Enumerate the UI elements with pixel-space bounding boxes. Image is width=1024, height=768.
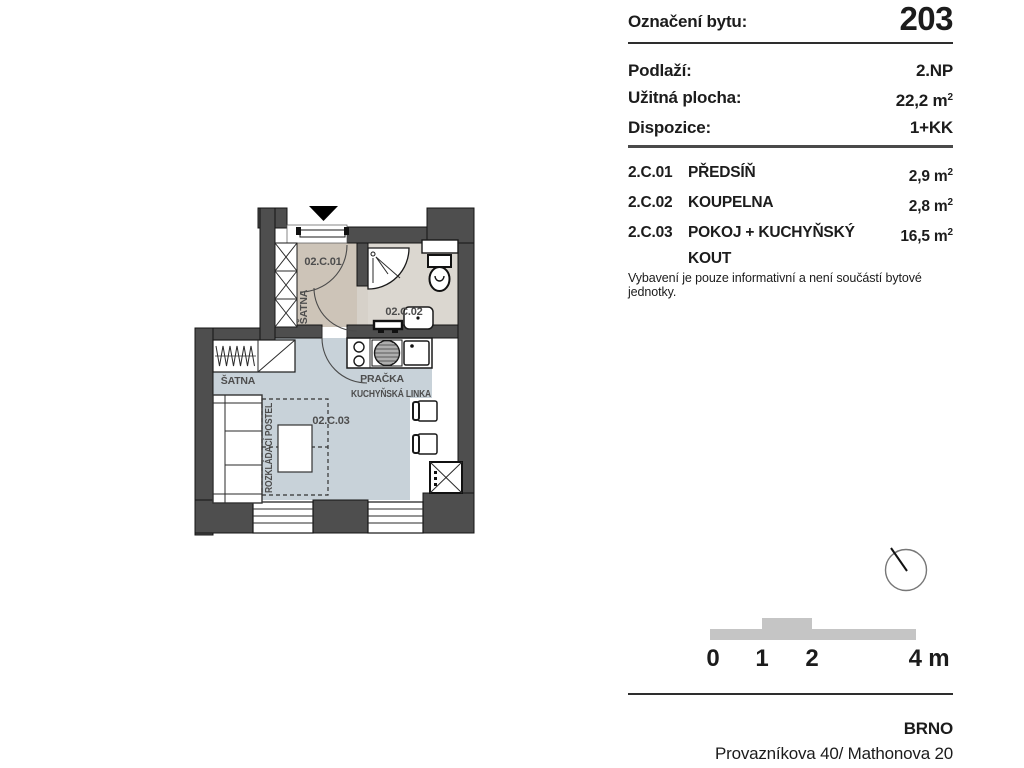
bath-door-floor: [357, 286, 368, 327]
room-row-2: 2.C.02 KOUPELNA 2,8 m2: [628, 190, 953, 220]
scale-tick-4m: 4 m: [909, 645, 950, 673]
room-wardrobe: [213, 340, 295, 372]
floor-plan-drawing: 02.C.01 ŠATNA 02.C.02 ŠATNA PRAČKA KUCHY…: [188, 198, 482, 542]
hall-wardrobe-label: ŠATNA: [297, 289, 310, 324]
room-code-label: 02.C.03: [312, 415, 349, 427]
entrance-arrow-icon: [309, 206, 338, 221]
wall-left-upper: [260, 208, 275, 340]
kitchen-unit-label: KUCHYŇSKÁ LINKA: [351, 387, 431, 400]
room-name: PŘEDSÍŇ: [688, 160, 909, 190]
room-code: 2.C.02: [628, 190, 688, 220]
chair-icon-1: [413, 401, 437, 421]
scale-tick-0: 0: [706, 645, 719, 673]
detail-row-layout: Dispozice: 1+KK: [628, 114, 953, 141]
washer-label: PRAČKA: [360, 372, 404, 385]
room-list: 2.C.01 PŘEDSÍŇ 2,9 m2 2.C.02 KOUPELNA 2,…: [628, 160, 953, 272]
shaft-icon: [430, 462, 462, 493]
detail-row-floor: Podlaží: 2.NP: [628, 57, 953, 84]
room-code: 2.C.01: [628, 160, 688, 190]
scale-segment-1: [710, 629, 762, 640]
entry-door-stop-left: [296, 227, 301, 235]
unit-details: Podlaží: 2.NP Užitná plocha: 22,2 m2 Dis…: [628, 57, 953, 141]
room-code: 2.C.03: [628, 220, 688, 272]
area-label: Užitná plocha:: [628, 84, 741, 114]
footer-divider-line: [628, 693, 953, 695]
scale-tick-1: 1: [755, 645, 768, 673]
room-row-3: 2.C.03 POKOJ + KUCHYŇSKÝ KOUT 16,5 m2: [628, 220, 953, 272]
wall-bottom-middle-block: [313, 500, 368, 533]
window-right: [368, 502, 423, 533]
floor-plan-sheet: 02.C.01 ŠATNA 02.C.02 ŠATNA PRAČKA KUCHY…: [0, 0, 1024, 768]
room-area: 16,5 m2: [900, 220, 953, 272]
wall-hall-bath-divider: [357, 243, 368, 286]
layout-value: 1+KK: [910, 114, 953, 141]
divider-line-2: [628, 145, 953, 148]
scale-segment-2: [762, 618, 812, 640]
area-value: 22,2 m2: [896, 84, 953, 114]
bathroom-shelf: [422, 240, 458, 253]
toilet-icon: [428, 255, 451, 291]
window-left: [253, 502, 313, 533]
kitchen-line: [347, 338, 432, 368]
footer-address: Provazníkova 40/ Mathonova 20: [528, 744, 953, 764]
floor-label: Podlaží:: [628, 57, 692, 84]
footer-city: BRNO: [628, 719, 953, 739]
wall-top-right-pillar: [427, 208, 474, 243]
kitchen-sink-icon: [404, 341, 429, 365]
sofa-icon: [213, 395, 262, 503]
scale-tick-labels: 0 1 2 4 m: [0, 645, 1024, 673]
scale-segment-3: [812, 629, 916, 640]
chair-icon-2: [413, 434, 437, 454]
room-name: POKOJ + KUCHYŇSKÝ KOUT: [688, 220, 900, 272]
room-area: 2,9 m2: [909, 160, 953, 190]
disclaimer-note: Vybavení je pouze informativní a není so…: [628, 271, 968, 299]
north-compass-icon: [883, 547, 929, 593]
table-icon: [278, 425, 312, 472]
washing-machine-icon: [372, 340, 402, 366]
room-row-1: 2.C.01 PŘEDSÍŇ 2,9 m2: [628, 160, 953, 190]
wall-bathroom-top: [347, 227, 429, 243]
unit-label: Označení bytu:: [628, 12, 747, 35]
scale-bar: [710, 618, 916, 640]
room-name: KOUPELNA: [688, 190, 909, 220]
floor-value: 2.NP: [916, 57, 953, 84]
folding-bed-label: ROZKLÁDACÍ POSTEL: [262, 402, 275, 493]
bath-code-label: 02.C.02: [385, 306, 422, 318]
wall-bottom-right-block: [423, 493, 474, 533]
wall-bottom-left-block: [195, 500, 253, 533]
room-area: 2,8 m2: [909, 190, 953, 220]
hall-code-label: 02.C.01: [304, 256, 341, 268]
layout-label: Dispozice:: [628, 114, 711, 141]
unit-header: Označení bytu: 203: [628, 2, 953, 35]
entrance: [287, 206, 349, 243]
hall-closet: [275, 243, 297, 327]
unit-number: 203: [899, 2, 953, 35]
entry-door-leaf: [300, 230, 345, 237]
room-wardrobe-label: ŠATNA: [221, 374, 256, 387]
divider-line-1: [628, 42, 953, 44]
floor-plan-svg: 02.C.01 ŠATNA 02.C.02 ŠATNA PRAČKA KUCHY…: [188, 198, 482, 542]
entry-door-stop-right: [344, 227, 349, 235]
detail-row-area: Užitná plocha: 22,2 m2: [628, 84, 953, 114]
scale-tick-2: 2: [805, 645, 818, 673]
